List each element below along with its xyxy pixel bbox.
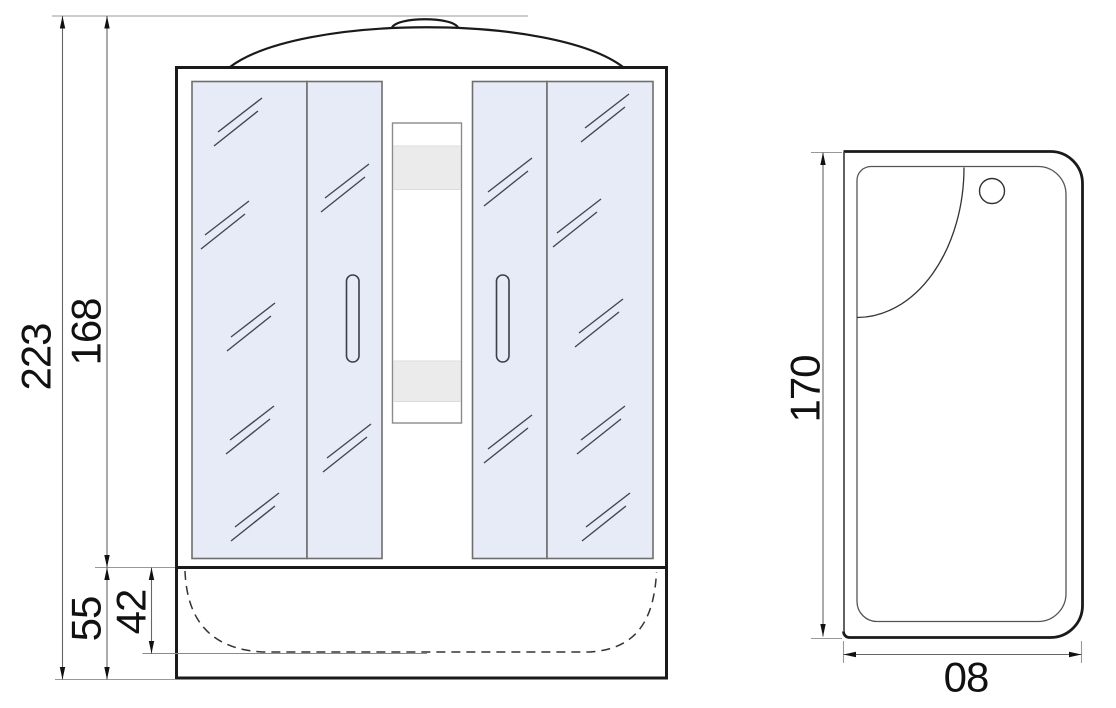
glass-panel-right-fixed bbox=[547, 82, 653, 559]
glass-panel-left-fixed bbox=[192, 82, 307, 559]
glass-door-left bbox=[307, 82, 382, 559]
dimension-label-width: 08 bbox=[944, 654, 989, 701]
drawing-canvas: 223 168 55 42 170 08 bbox=[0, 0, 1116, 708]
central-column-band-upper bbox=[394, 146, 461, 190]
dimension-label-length: 170 bbox=[782, 355, 829, 422]
central-column-band-lower bbox=[394, 361, 461, 402]
dimension-label-basin-depth: 42 bbox=[108, 590, 155, 635]
shower-cabin-technical-drawing: 223 168 55 42 170 08 bbox=[0, 0, 1116, 708]
dome-roof-curve bbox=[230, 27, 623, 67]
top-view bbox=[844, 152, 1083, 638]
dimension-label-door-section: 168 bbox=[63, 298, 110, 365]
drain-circle bbox=[980, 179, 1005, 204]
dimension-label-total-height: 223 bbox=[13, 323, 60, 390]
dimension-label-tray-height: 55 bbox=[63, 597, 110, 642]
tray-outer-outline bbox=[844, 152, 1083, 638]
front-view bbox=[143, 19, 669, 678]
